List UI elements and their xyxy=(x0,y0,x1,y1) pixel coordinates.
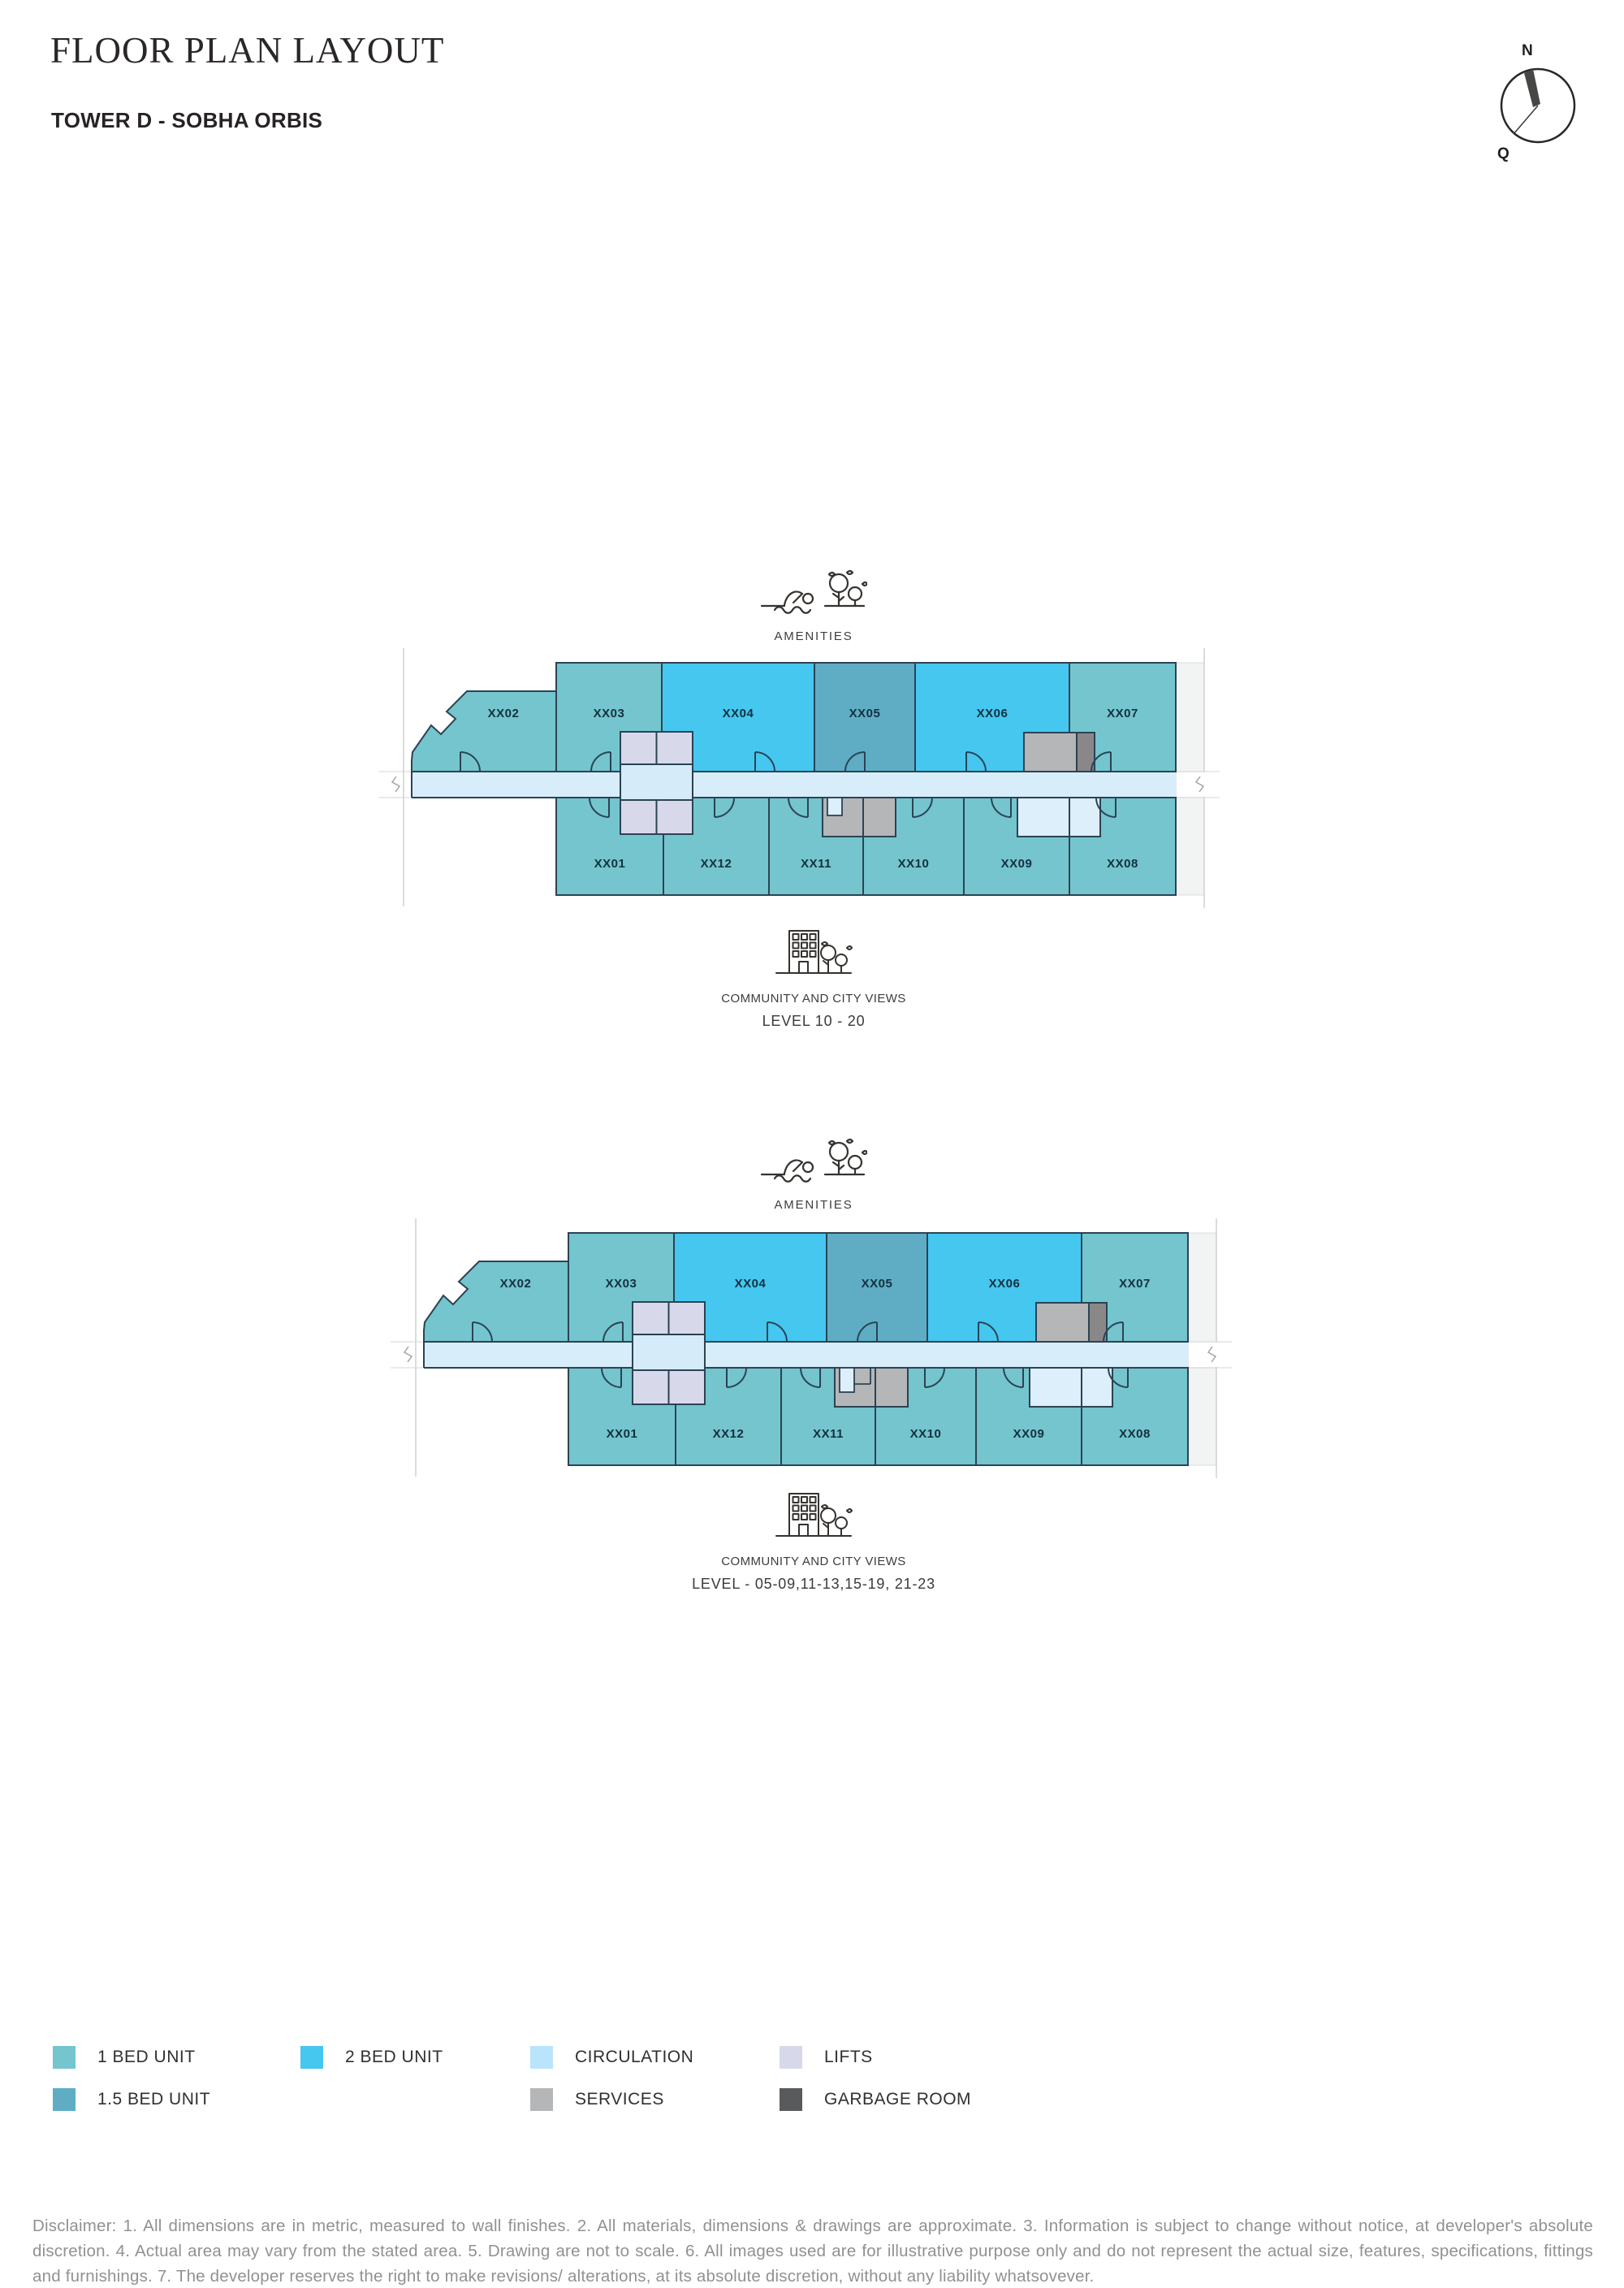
legend-item-circulation: CIRCULATION xyxy=(530,2046,693,2069)
floor-plan-1: XX02XX03XX04XX05XX06XX07XX01XX12XX11XX10… xyxy=(374,638,1259,927)
legend-label: LIFTS xyxy=(824,2046,873,2069)
lift-lobby xyxy=(620,764,693,800)
level-label-1: LEVEL 10 - 20 xyxy=(692,1013,935,1030)
unit-label-XX10: XX10 xyxy=(898,857,930,871)
level-label-2: LEVEL - 05-09,11-13,15-19, 21-23 xyxy=(692,1576,935,1593)
legend-item-2-bed-unit: 2 BED UNIT xyxy=(300,2046,443,2069)
legend-item-garbage-room: GARBAGE ROOM xyxy=(780,2088,971,2111)
unit-label-XX06: XX06 xyxy=(989,1277,1021,1291)
compass-south-label: Q xyxy=(1497,145,1510,162)
legend-swatch xyxy=(53,2046,76,2069)
floor-plan-2: XX02XX03XX04XX05XX06XX07XX01XX12XX11XX10… xyxy=(386,1209,1271,1497)
lift-lobby xyxy=(633,1334,705,1370)
legend-item-lifts: LIFTS xyxy=(780,2046,873,2069)
unit-label-XX08: XX08 xyxy=(1107,857,1138,871)
unit-label-XX02: XX02 xyxy=(500,1277,532,1291)
legend-label: 1 BED UNIT xyxy=(97,2046,196,2069)
services-block-top xyxy=(1024,733,1077,772)
unit-XX02 xyxy=(424,1261,568,1342)
unit-label-XX09: XX09 xyxy=(1001,857,1033,871)
legend-swatch xyxy=(530,2046,553,2069)
compass-icon: N Q xyxy=(1484,31,1590,165)
community-block-1: COMMUNITY AND CITY VIEWS LEVEL 10 - 20 xyxy=(692,926,935,1030)
legend-item-1-5-bed-unit: 1.5 BED UNIT xyxy=(53,2088,210,2111)
floor-plan-svg-1: XX02XX03XX04XX05XX06XX07XX01XX12XX11XX10… xyxy=(374,638,1259,923)
page-root: FLOOR PLAN LAYOUT TOWER D - SOBHA ORBIS … xyxy=(0,0,1624,2288)
unit-label-XX12: XX12 xyxy=(701,857,732,871)
corridor xyxy=(412,772,1176,798)
unit-label-XX11: XX11 xyxy=(801,857,831,871)
amenities-block-2: AMENITIES xyxy=(692,1137,935,1212)
amenities-icon xyxy=(760,569,867,621)
corridor xyxy=(424,1342,1188,1368)
unit-label-XX07: XX07 xyxy=(1107,707,1138,720)
compass-needle xyxy=(1524,69,1540,107)
unit-label-XX03: XX03 xyxy=(606,1277,637,1291)
services-block-top xyxy=(1036,1303,1089,1342)
unit-label-XX03: XX03 xyxy=(594,707,625,720)
legend-label: 1.5 BED UNIT xyxy=(97,2088,210,2111)
legend-swatch xyxy=(780,2046,802,2069)
legend-swatch xyxy=(780,2088,802,2111)
community-label-1: COMMUNITY AND CITY VIEWS xyxy=(692,992,935,1006)
circulation-notch xyxy=(840,1368,854,1392)
disclaimer-text: Disclaimer: 1. All dimensions are in met… xyxy=(32,2214,1593,2288)
amenities-icon xyxy=(760,1137,867,1189)
break-mark xyxy=(404,1347,412,1362)
unit-label-XX09: XX09 xyxy=(1013,1427,1045,1441)
circulation-lobby xyxy=(1030,1368,1112,1407)
circulation-notch xyxy=(827,798,842,815)
unit-label-XX12: XX12 xyxy=(713,1427,745,1441)
unit-label-XX05: XX05 xyxy=(862,1277,893,1291)
compass-north-label: N xyxy=(1522,42,1533,59)
legend-label: 2 BED UNIT xyxy=(345,2046,443,2069)
page-subtitle: TOWER D - SOBHA ORBIS xyxy=(51,108,322,133)
legend-swatch xyxy=(300,2046,323,2069)
unit-label-XX01: XX01 xyxy=(594,857,626,871)
unit-label-XX07: XX07 xyxy=(1119,1277,1151,1291)
legend-label: CIRCULATION xyxy=(575,2046,693,2069)
unit-label-XX02: XX02 xyxy=(488,707,520,720)
unit-label-XX08: XX08 xyxy=(1119,1427,1151,1441)
community-city-icon xyxy=(771,1489,856,1546)
page-title: FLOOR PLAN LAYOUT xyxy=(50,29,444,71)
legend-label: GARBAGE ROOM xyxy=(824,2088,971,2111)
legend-swatch xyxy=(530,2088,553,2111)
community-label-2: COMMUNITY AND CITY VIEWS xyxy=(692,1555,935,1568)
floor-plan-svg-2: XX02XX03XX04XX05XX06XX07XX01XX12XX11XX10… xyxy=(386,1209,1271,1493)
unit-label-XX11: XX11 xyxy=(813,1427,844,1441)
unit-label-XX01: XX01 xyxy=(607,1427,638,1441)
community-city-icon xyxy=(771,926,856,983)
unit-label-XX06: XX06 xyxy=(977,707,1009,720)
unit-label-XX05: XX05 xyxy=(849,707,881,720)
unit-label-XX10: XX10 xyxy=(910,1427,942,1441)
legend-label: SERVICES xyxy=(575,2088,664,2111)
amenities-block-1: AMENITIES xyxy=(692,569,935,643)
unit-label-XX04: XX04 xyxy=(735,1277,767,1291)
legend-item-services: SERVICES xyxy=(530,2088,664,2111)
circulation-lobby xyxy=(1017,798,1100,837)
break-mark xyxy=(392,776,400,792)
legend-item-1-bed-unit: 1 BED UNIT xyxy=(53,2046,196,2069)
unit-label-XX04: XX04 xyxy=(723,707,754,720)
legend-swatch xyxy=(53,2088,76,2111)
unit-XX02 xyxy=(412,691,556,772)
community-block-2: COMMUNITY AND CITY VIEWS LEVEL - 05-09,1… xyxy=(692,1489,935,1593)
